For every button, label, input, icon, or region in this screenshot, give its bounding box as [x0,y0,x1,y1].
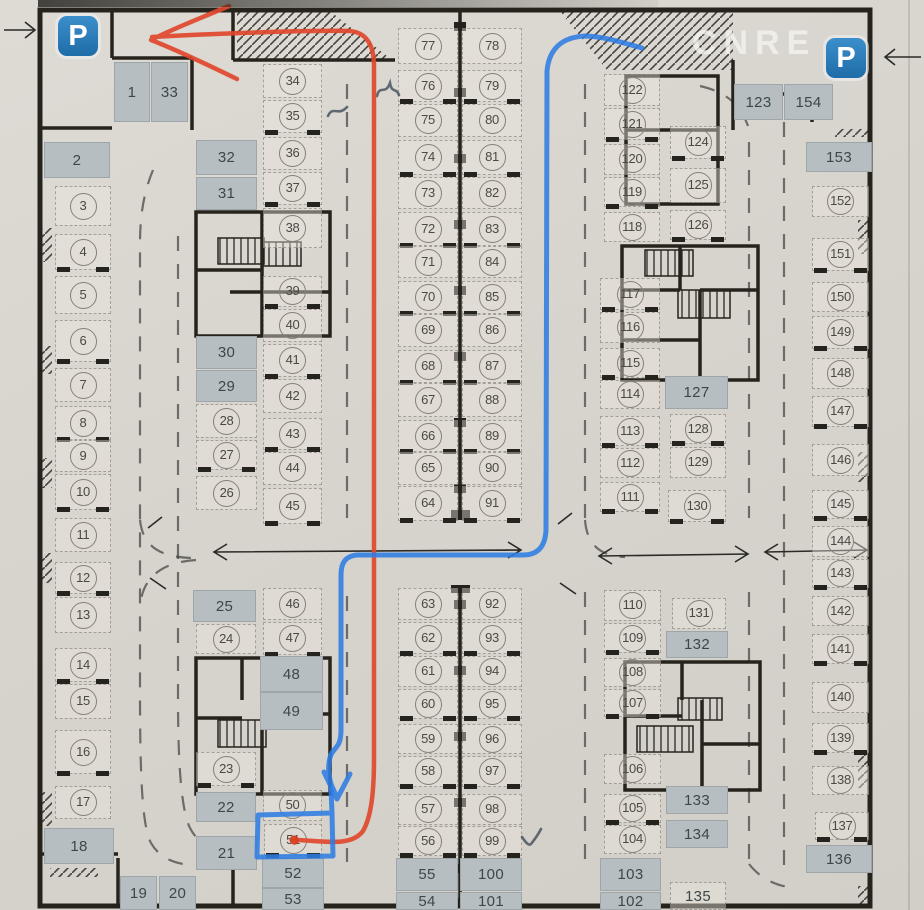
space-number: 86 [479,317,506,344]
space-number: 33 [161,84,178,101]
parking-space-67: 67 [398,383,458,417]
parking-space-86: 86 [462,314,522,347]
parking-space-66: 66 [398,420,458,452]
parking-space-107: 107 [604,689,661,717]
space-number: 66 [415,423,442,450]
space-number: 62 [415,625,442,652]
parking-space-124: 124 [670,126,726,159]
space-number: 127 [684,384,710,401]
space-number: 141 [827,636,854,663]
space-number: 106 [619,756,646,783]
space-number: 38 [279,215,306,242]
space-number: 40 [279,312,306,339]
space-number: 54 [418,893,435,910]
space-number: 82 [479,180,506,207]
space-number: 138 [827,767,854,794]
space-number: 140 [827,684,854,711]
parking-space-122: 122 [604,74,660,106]
parking-space-123: 123 [734,84,783,120]
space-number: 112 [617,450,644,477]
parking-space-27: 27 [196,440,257,470]
parking-space-131: 131 [672,598,726,629]
space-number: 45 [279,493,306,520]
parking-space-84: 84 [462,246,522,278]
space-number: 84 [479,249,506,276]
space-number: 132 [684,636,710,653]
space-number: 31 [218,185,235,202]
space-number: 14 [70,652,97,679]
parking-space-4: 4 [55,234,111,270]
space-number: 17 [70,789,97,816]
parking-space-19: 19 [120,876,157,910]
parking-space-94: 94 [462,656,522,687]
space-number: 110 [619,592,646,619]
parking-space-79: 79 [462,70,522,102]
space-number: 36 [279,140,306,167]
space-number: 76 [415,73,442,100]
parking-space-2: 2 [44,142,110,178]
spaces-layer: 1332345678910111213141516171819203231302… [0,0,924,910]
space-number: 20 [169,885,186,902]
parking-space-73: 73 [398,177,458,209]
parking-space-49: 49 [260,692,323,730]
parking-space-40: 40 [263,309,322,342]
space-number: 137 [829,813,856,840]
space-number: 148 [827,360,854,387]
space-number: 11 [70,522,97,549]
parking-space-140: 140 [812,682,869,713]
space-number: 133 [684,792,710,809]
parking-space-78: 78 [462,28,522,64]
parking-space-63: 63 [398,588,458,620]
space-number: 70 [415,284,442,311]
parking-space-55: 55 [396,858,458,891]
space-number: 89 [479,423,506,450]
parking-space-68: 68 [398,350,458,383]
space-number: 78 [479,33,506,60]
parking-space-106: 106 [604,754,661,784]
parking-space-88: 88 [462,383,522,417]
space-number: 26 [213,480,240,507]
space-number: 111 [617,484,644,511]
parking-space-38: 38 [263,208,322,248]
parking-space-141: 141 [812,634,869,664]
space-number: 151 [827,241,854,268]
parking-space-80: 80 [462,104,522,137]
space-number: 74 [415,144,442,171]
parking-space-56: 56 [398,826,458,856]
space-number: 83 [479,216,506,243]
space-number: 99 [479,828,506,855]
space-number: 19 [130,885,147,902]
space-number: 145 [827,491,854,518]
space-number: 146 [827,447,854,474]
space-number: 53 [284,891,301,908]
parking-space-153: 153 [806,142,872,172]
parking-space-70: 70 [398,281,458,314]
parking-space-116: 116 [600,312,660,343]
space-number: 152 [827,188,854,215]
parking-space-113: 113 [600,416,660,446]
space-number: 72 [415,216,442,243]
parking-space-114: 114 [600,380,660,409]
parking-space-81: 81 [462,140,522,175]
space-number: 94 [479,658,506,685]
parking-space-57: 57 [398,794,458,825]
parking-space-108: 108 [604,658,661,687]
space-number: 120 [619,146,646,173]
space-number: 116 [617,314,644,341]
space-number: 123 [746,94,772,111]
parking-space-112: 112 [600,448,660,478]
space-number: 25 [216,598,233,615]
parking-space-48: 48 [260,656,323,692]
parking-space-53: 53 [262,888,324,910]
space-number: 16 [70,739,97,766]
parking-space-129: 129 [670,447,726,478]
space-number: 39 [279,278,306,305]
space-number: 143 [827,560,854,587]
space-number: 80 [479,107,506,134]
parking-space-95: 95 [462,689,522,719]
parking-space-51: 51 [264,824,322,856]
space-number: 59 [415,726,442,753]
space-number: 37 [279,175,306,202]
parking-space-91: 91 [462,486,522,521]
space-number: 135 [685,888,711,905]
space-number: 43 [279,421,306,448]
space-number: 130 [684,493,711,520]
space-number: 75 [415,107,442,134]
space-number: 28 [213,408,240,435]
space-number: 18 [70,838,87,855]
parking-space-151: 151 [812,238,869,271]
parking-space-121: 121 [604,108,660,140]
parking-space-7: 7 [55,368,111,402]
parking-space-102: 102 [600,892,661,910]
parking-space-18: 18 [44,828,114,864]
parking-space-130: 130 [668,490,726,522]
parking-space-33: 33 [151,62,188,122]
space-number: 3 [70,193,97,220]
space-number: 87 [479,353,506,380]
parking-space-128: 128 [670,414,726,444]
space-number: 134 [684,826,710,843]
space-number: 150 [827,284,854,311]
parking-space-14: 14 [55,648,111,682]
parking-space-120: 120 [604,144,660,175]
space-number: 22 [217,799,234,816]
parking-space-37: 37 [263,172,322,205]
space-number: 118 [619,214,646,241]
space-number: 4 [70,239,97,266]
space-number: 64 [415,490,442,517]
space-number: 129 [685,449,712,476]
space-number: 21 [218,845,235,862]
parking-space-76: 76 [398,70,458,102]
parking-space-134: 134 [666,820,728,848]
parking-space-148: 148 [812,358,869,389]
space-number: 77 [415,33,442,60]
space-number: 24 [213,626,240,653]
space-number: 23 [213,756,240,783]
parking-space-43: 43 [263,418,322,450]
parking-space-34: 34 [263,64,322,98]
parking-space-20: 20 [159,876,196,910]
scan-edge-shadow [38,0,658,7]
space-number: 96 [479,726,506,753]
parking-space-44: 44 [263,452,322,485]
parking-space-52: 52 [262,858,324,888]
space-number: 153 [826,149,852,166]
space-number: 5 [70,282,97,309]
parking-space-89: 89 [462,420,522,452]
space-number: 9 [70,443,97,470]
parking-space-150: 150 [812,282,869,312]
parking-space-5: 5 [55,276,111,314]
space-number: 121 [619,111,646,138]
space-number: 104 [619,826,646,853]
space-number: 109 [619,625,646,652]
space-number: 73 [415,180,442,207]
space-number: 125 [685,172,712,199]
parking-space-111: 111 [600,482,660,512]
parking-space-24: 24 [196,624,256,654]
parking-space-12: 12 [55,562,111,594]
parking-space-41: 41 [263,344,322,377]
parking-space-10: 10 [55,474,111,510]
parking-space-1: 1 [114,62,150,122]
parking-space-137: 137 [815,812,869,840]
space-number: 49 [283,703,300,720]
space-number: 1 [128,84,137,101]
parking-space-93: 93 [462,622,522,654]
space-number: 105 [619,795,646,822]
parking-space-46: 46 [263,588,322,620]
space-number: 55 [418,866,435,883]
space-number: 30 [218,344,235,361]
parking-space-62: 62 [398,622,458,654]
space-number: 144 [827,528,854,555]
space-number: 124 [685,129,712,156]
space-number: 34 [279,68,306,95]
parking-space-115: 115 [600,348,660,378]
space-number: 41 [279,347,306,374]
parking-space-136: 136 [806,845,872,873]
parking-space-132: 132 [666,631,728,658]
parking-space-142: 142 [812,596,869,626]
parking-space-6: 6 [55,320,111,362]
space-number: 90 [479,455,506,482]
parking-space-96: 96 [462,724,522,754]
space-number: 93 [479,625,506,652]
parking-space-103: 103 [600,858,661,891]
space-number: 122 [619,77,646,104]
parking-space-104: 104 [604,825,661,854]
parking-space-117: 117 [600,278,660,310]
parking-space-35: 35 [263,100,322,133]
parking-space-39: 39 [263,276,322,307]
parking-space-21: 21 [196,836,257,870]
space-number: 98 [479,796,506,823]
parking-space-13: 13 [55,597,111,633]
parking-space-143: 143 [812,559,869,588]
space-number: 15 [70,688,97,715]
parking-space-92: 92 [462,588,522,620]
space-number: 91 [479,490,506,517]
parking-space-15: 15 [55,684,111,719]
parking-space-105: 105 [604,794,661,823]
space-number: 92 [479,591,506,618]
space-number: 103 [618,866,644,883]
space-number: 29 [218,378,235,395]
parking-space-58: 58 [398,756,458,787]
space-number: 142 [827,598,854,625]
space-number: 48 [283,666,300,683]
space-number: 126 [685,212,712,239]
space-number: 57 [415,796,442,823]
parking-space-60: 60 [398,689,458,719]
parking-space-23: 23 [196,752,256,786]
space-number: 58 [415,758,442,785]
space-number: 32 [218,149,235,166]
space-number: 149 [827,319,854,346]
parking-space-65: 65 [398,452,458,485]
parking-space-11: 11 [55,518,111,552]
space-number: 108 [619,659,646,686]
parking-space-127: 127 [665,376,728,409]
parking-floor-plan: 1332345678910111213141516171819203231302… [0,0,924,910]
parking-space-139: 139 [812,723,869,753]
space-number: 154 [796,94,822,111]
space-number: 139 [827,725,854,752]
parking-space-72: 72 [398,212,458,246]
space-number: 63 [415,591,442,618]
space-number: 97 [479,758,506,785]
parking-space-90: 90 [462,452,522,485]
space-number: 61 [415,658,442,685]
parking-space-75: 75 [398,104,458,137]
parking-space-152: 152 [812,186,869,217]
space-number: 2 [73,152,82,169]
parking-space-50: 50 [263,790,322,821]
parking-space-17: 17 [55,786,111,819]
parking-space-145: 145 [812,490,869,519]
space-number: 88 [479,387,506,414]
space-number: 85 [479,284,506,311]
parking-space-71: 71 [398,246,458,278]
parking-space-98: 98 [462,794,522,825]
parking-space-100: 100 [460,858,522,891]
parking-space-126: 126 [670,210,726,240]
space-number: 131 [686,600,713,627]
space-number: 7 [70,372,97,399]
parking-space-85: 85 [462,281,522,314]
parking-space-144: 144 [812,526,869,557]
parking-space-125: 125 [670,168,726,203]
parking-space-110: 110 [604,590,661,621]
space-number: 67 [415,387,442,414]
space-number: 114 [617,381,644,408]
parking-space-36: 36 [263,137,322,170]
parking-sign-left: P [58,16,98,56]
parking-space-28: 28 [196,404,257,438]
space-number: 27 [213,442,240,469]
parking-space-118: 118 [604,212,660,242]
space-number: 115 [617,350,644,377]
parking-space-3: 3 [55,186,111,226]
parking-space-54: 54 [396,892,458,910]
space-number: 10 [70,479,97,506]
space-number: 44 [279,455,306,482]
space-number: 100 [478,866,504,883]
parking-space-61: 61 [398,656,458,687]
parking-space-45: 45 [263,488,322,524]
space-number: 117 [617,281,644,308]
parking-space-30: 30 [196,336,257,369]
space-number: 69 [415,317,442,344]
space-number: 107 [619,690,646,717]
parking-space-138: 138 [812,766,869,795]
parking-space-26: 26 [196,476,257,510]
parking-space-31: 31 [196,177,257,210]
space-number: 128 [685,416,712,443]
parking-space-147: 147 [812,396,869,427]
parking-space-99: 99 [462,826,522,856]
parking-space-87: 87 [462,350,522,383]
parking-space-32: 32 [196,140,257,175]
space-number: 12 [70,565,97,592]
parking-space-22: 22 [196,792,256,822]
parking-space-59: 59 [398,724,458,754]
space-number: 65 [415,455,442,482]
space-number: 102 [618,893,644,910]
space-number: 6 [70,328,97,355]
space-number: 13 [70,602,97,629]
parking-space-42: 42 [263,379,322,413]
parking-space-47: 47 [263,622,322,655]
space-number: 136 [826,851,852,868]
space-number: 47 [279,625,306,652]
space-number: 42 [279,383,306,410]
space-number: 95 [479,691,506,718]
parking-space-8: 8 [55,406,111,440]
space-number: 8 [70,410,97,437]
space-number: 81 [479,144,506,171]
space-number: 71 [415,249,442,276]
parking-space-101: 101 [460,892,522,910]
parking-space-154: 154 [784,84,833,120]
parking-space-82: 82 [462,177,522,209]
parking-space-25: 25 [193,590,256,622]
parking-space-109: 109 [604,623,661,653]
space-number: 119 [619,179,646,206]
space-number: 52 [284,865,301,882]
parking-space-149: 149 [812,316,869,349]
parking-space-64: 64 [398,486,458,521]
parking-space-97: 97 [462,756,522,787]
space-number: 50 [279,792,306,819]
space-number: 51 [280,827,307,854]
parking-space-29: 29 [196,370,257,402]
space-number: 101 [478,893,504,910]
space-number: 79 [479,73,506,100]
space-number: 56 [415,828,442,855]
parking-space-77: 77 [398,28,458,64]
parking-space-16: 16 [55,730,111,774]
space-number: 147 [827,398,854,425]
parking-sign-right: P [826,38,866,78]
